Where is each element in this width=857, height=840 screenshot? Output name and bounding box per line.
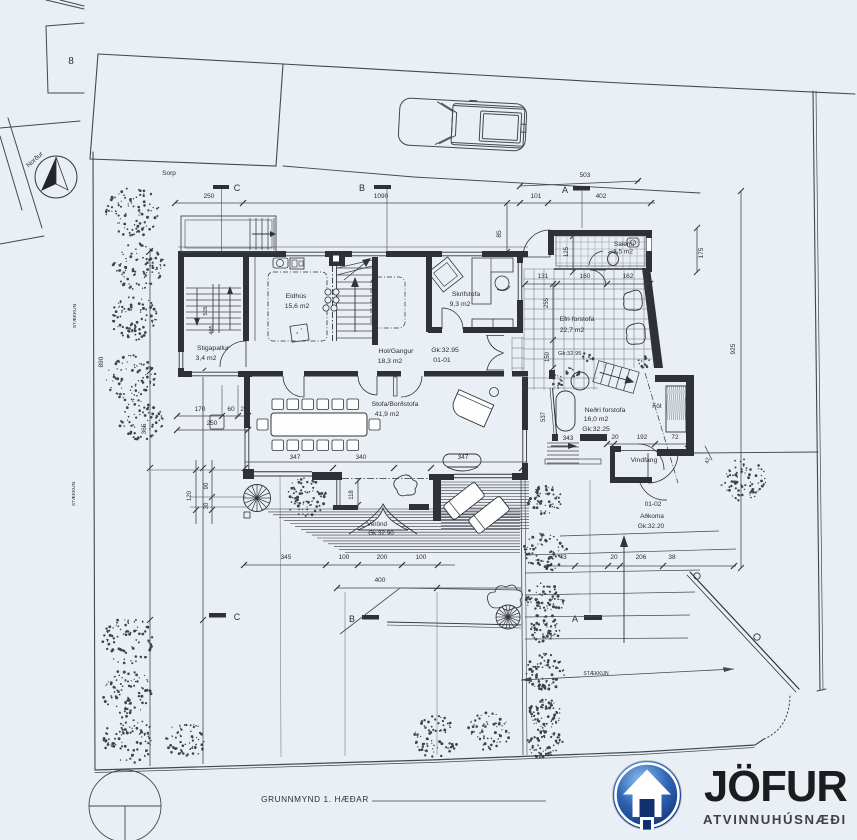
svg-text:8: 8 xyxy=(68,56,74,67)
svg-text:C: C xyxy=(234,183,241,193)
svg-text:206: 206 xyxy=(636,554,647,561)
svg-text:340: 340 xyxy=(356,454,367,461)
svg-text:503: 503 xyxy=(580,172,591,179)
svg-text:72: 72 xyxy=(671,434,679,441)
svg-text:STÆKKUN: STÆKKUN xyxy=(583,671,609,677)
svg-text:101: 101 xyxy=(531,193,542,200)
svg-text:250: 250 xyxy=(207,420,218,427)
svg-text:GRUNNMYND 1. HÆÐAR: GRUNNMYND 1. HÆÐAR xyxy=(261,795,369,804)
svg-text:JÖFUR: JÖFUR xyxy=(704,762,847,811)
svg-text:150: 150 xyxy=(545,351,551,362)
svg-text:38: 38 xyxy=(668,554,676,561)
svg-text:Skrifstofa: Skrifstofa xyxy=(452,291,481,298)
svg-text:Hol/Gangur: Hol/Gangur xyxy=(379,348,414,355)
svg-text:100: 100 xyxy=(416,554,427,561)
svg-text:22,7 m2: 22,7 m2 xyxy=(560,327,585,334)
svg-text:85: 85 xyxy=(496,230,503,238)
svg-text:ATVINNUHÚSNÆÐI: ATVINNUHÚSNÆÐI xyxy=(703,812,847,827)
svg-text:100: 100 xyxy=(339,554,350,561)
svg-text:Verönd: Verönd xyxy=(367,521,387,528)
svg-text:C: C xyxy=(234,612,241,622)
svg-text:Aðkoma: Aðkoma xyxy=(640,512,664,520)
svg-text:Sorp: Sorp xyxy=(162,170,176,177)
svg-text:16,0 m2: 16,0 m2 xyxy=(584,416,609,423)
svg-text:343: 343 xyxy=(563,435,574,442)
svg-text:A: A xyxy=(572,614,578,624)
svg-text:175: 175 xyxy=(698,247,705,258)
svg-text:160: 160 xyxy=(580,273,591,280)
svg-text:60: 60 xyxy=(227,406,235,413)
svg-text:Gk:32.25: Gk:32.25 xyxy=(582,426,610,433)
svg-text:STÆKKUN: STÆKKUN xyxy=(72,303,78,328)
svg-text:30: 30 xyxy=(204,502,210,509)
svg-text:Vindfang: Vindfang xyxy=(631,457,658,464)
svg-text:B: B xyxy=(349,614,355,624)
svg-text:90: 90 xyxy=(204,482,210,489)
svg-text:STÆKKUN: STÆKKUN xyxy=(71,481,77,506)
svg-text:131: 131 xyxy=(538,273,549,280)
svg-text:Neðri forstofa: Neðri forstofa xyxy=(585,406,626,414)
svg-text:Efri forstofa: Efri forstofa xyxy=(560,316,595,323)
svg-text:15,6 m2: 15,6 m2 xyxy=(285,303,310,310)
svg-text:255: 255 xyxy=(544,297,550,308)
svg-text:400: 400 xyxy=(375,577,386,584)
svg-text:890: 890 xyxy=(98,356,105,367)
svg-text:A: A xyxy=(562,185,568,195)
svg-text:365: 365 xyxy=(141,423,148,434)
svg-text:20: 20 xyxy=(610,554,618,561)
svg-text:402: 402 xyxy=(596,193,607,200)
svg-text:1090: 1090 xyxy=(374,193,389,200)
svg-text:537: 537 xyxy=(541,411,547,422)
svg-text:43: 43 xyxy=(559,554,567,561)
svg-text:505: 505 xyxy=(203,306,209,315)
svg-text:170: 170 xyxy=(195,406,206,413)
svg-text:B: B xyxy=(359,183,365,193)
svg-text:1,5 m2: 1,5 m2 xyxy=(613,249,633,256)
svg-text:Gk:32.90: Gk:32.90 xyxy=(368,530,394,537)
svg-text:Gk:32.20: Gk:32.20 xyxy=(638,523,665,530)
svg-text:Föt: Föt xyxy=(652,403,662,410)
svg-text:01-01: 01-01 xyxy=(433,357,451,364)
svg-text:20: 20 xyxy=(611,434,619,441)
svg-text:Gk:32.95: Gk:32.95 xyxy=(558,351,582,357)
svg-text:9,3 m2: 9,3 m2 xyxy=(450,301,471,308)
svg-text:18,3 m2: 18,3 m2 xyxy=(378,358,403,365)
svg-text:192: 192 xyxy=(637,434,648,441)
svg-text:Eldhús: Eldhús xyxy=(286,293,307,300)
svg-text:41,9 m2: 41,9 m2 xyxy=(375,411,400,418)
svg-text:Salerni: Salerni xyxy=(614,241,634,248)
svg-text:200: 200 xyxy=(377,554,388,561)
svg-text:345: 345 xyxy=(281,554,292,561)
svg-text:250: 250 xyxy=(204,193,215,200)
svg-text:120: 120 xyxy=(187,490,193,501)
svg-text:118: 118 xyxy=(349,490,355,500)
svg-text:01-02: 01-02 xyxy=(645,501,662,508)
svg-text:347: 347 xyxy=(290,454,301,461)
svg-text:Stigapallur: Stigapallur xyxy=(197,345,230,352)
svg-text:Stofa/Borðstofa: Stofa/Borðstofa xyxy=(372,400,419,408)
svg-text:3,4 m2: 3,4 m2 xyxy=(196,355,217,362)
svg-text:347: 347 xyxy=(458,454,469,461)
svg-text:125: 125 xyxy=(564,246,570,257)
svg-text:925: 925 xyxy=(730,343,737,354)
svg-text:Gk:32.95: Gk:32.95 xyxy=(431,347,459,354)
svg-text:162: 162 xyxy=(623,273,634,280)
